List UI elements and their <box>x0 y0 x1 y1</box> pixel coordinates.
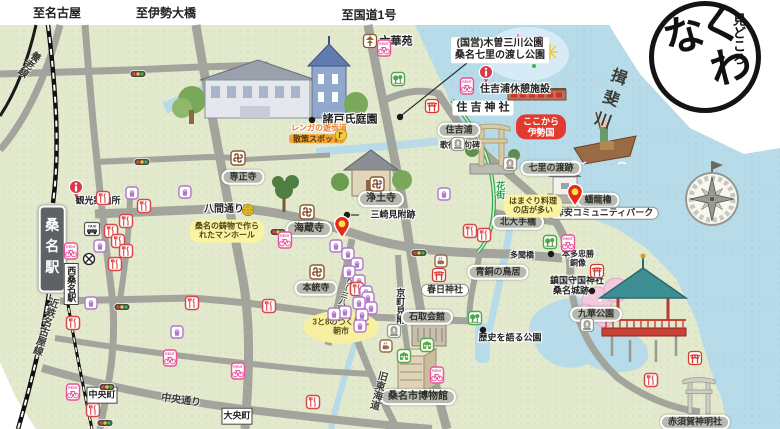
shopping-icon <box>125 186 139 200</box>
facility-icon <box>420 338 435 353</box>
temple-manji-icon <box>230 150 246 166</box>
flag-pin-icon <box>334 129 349 146</box>
pagoda-icon <box>363 34 378 49</box>
bicycle-rental-icon: RENT <box>377 39 392 57</box>
svg-text:RENT: RENT <box>462 80 473 84</box>
spot-dot <box>309 117 316 124</box>
traffic-light-icon <box>134 158 151 166</box>
bicycle-rental-icon: RENT <box>460 77 475 95</box>
restaurant-icon <box>477 228 492 243</box>
svg-text:RENT: RENT <box>280 234 291 238</box>
spot-dot <box>397 114 404 121</box>
manhole-icon <box>242 204 255 217</box>
monument-icon <box>503 157 518 172</box>
bicycle-rental-icon: RENT <box>561 234 576 252</box>
park-icon <box>391 72 406 87</box>
restaurant-icon <box>306 395 321 410</box>
svg-text:RENT: RENT <box>233 365 244 369</box>
restaurant-icon <box>262 299 277 314</box>
temple-manji-icon <box>299 204 315 220</box>
location-pin-icon <box>333 215 352 240</box>
taxi-icon: TAXI <box>84 222 101 237</box>
cafe-icon <box>434 254 448 268</box>
torii-shrine-icon <box>432 268 447 283</box>
park-icon <box>543 235 558 250</box>
restaurant-icon <box>644 373 659 388</box>
shopping-icon <box>93 239 107 253</box>
torii-shrine-icon <box>425 99 440 114</box>
traffic-light-icon <box>130 70 147 78</box>
temple-manji-icon <box>369 176 385 192</box>
park-icon <box>468 311 483 326</box>
traffic-light-icon <box>114 303 131 311</box>
shopping-icon <box>437 187 451 201</box>
svg-text:RENT: RENT <box>432 369 443 373</box>
traffic-light-icon <box>411 249 428 257</box>
facility-icon <box>397 349 412 364</box>
rotary-icon <box>83 253 96 266</box>
torii-shrine-icon <box>590 264 605 279</box>
spot-dot <box>548 251 555 258</box>
restaurant-icon <box>119 214 134 229</box>
traffic-light-icon <box>99 383 116 391</box>
information-icon <box>68 179 84 199</box>
monument-icon <box>580 318 595 333</box>
midokoro-kuwana-logo: 見どころ くわな <box>649 1 761 113</box>
spot-dot <box>480 327 487 334</box>
restaurant-icon <box>86 403 101 418</box>
traffic-light-icon <box>97 419 114 427</box>
bicycle-rental-icon: RENT <box>66 383 81 401</box>
bicycle-rental-icon: RENT <box>278 231 293 249</box>
cafe-icon <box>379 339 393 353</box>
restaurant-icon <box>108 257 123 272</box>
bicycle-rental-icon: RENT <box>430 366 445 384</box>
svg-text:RENT: RENT <box>66 245 77 249</box>
restaurant-icon <box>96 191 111 206</box>
svg-text:RENT: RENT <box>165 352 176 356</box>
spot-dot <box>589 288 596 295</box>
logo-title: くわな <box>657 0 755 115</box>
monument-icon <box>451 137 466 152</box>
shopping-icon <box>84 296 98 310</box>
shopping-icon <box>353 319 367 333</box>
kuwana-sightseeing-map: 至名古屋至伊勢大橋至国道1号六華苑(国営)木曽三川公園桑名七里の渡し公園住吉浦休… <box>0 0 780 429</box>
svg-text:RENT: RENT <box>68 386 79 390</box>
monument-icon <box>387 324 402 339</box>
temple-manji-icon <box>309 264 325 280</box>
bicycle-rental-icon: RENT <box>231 362 246 380</box>
shopping-icon <box>178 185 192 199</box>
svg-text:RENT: RENT <box>379 42 390 46</box>
torii-shrine-icon <box>688 351 703 366</box>
bicycle-rental-icon: RENT <box>64 242 79 260</box>
restaurant-icon <box>137 199 152 214</box>
restaurant-icon <box>185 296 200 311</box>
shopping-icon <box>170 325 184 339</box>
location-pin-icon <box>566 183 585 208</box>
bicycle-rental-icon: RENT <box>163 349 178 367</box>
restaurant-icon <box>463 224 478 239</box>
svg-text:TAXI: TAXI <box>88 224 97 229</box>
information-icon <box>478 64 494 84</box>
restaurant-icon <box>66 316 81 331</box>
shopping-icon <box>327 307 341 321</box>
svg-text:RENT: RENT <box>563 237 574 241</box>
